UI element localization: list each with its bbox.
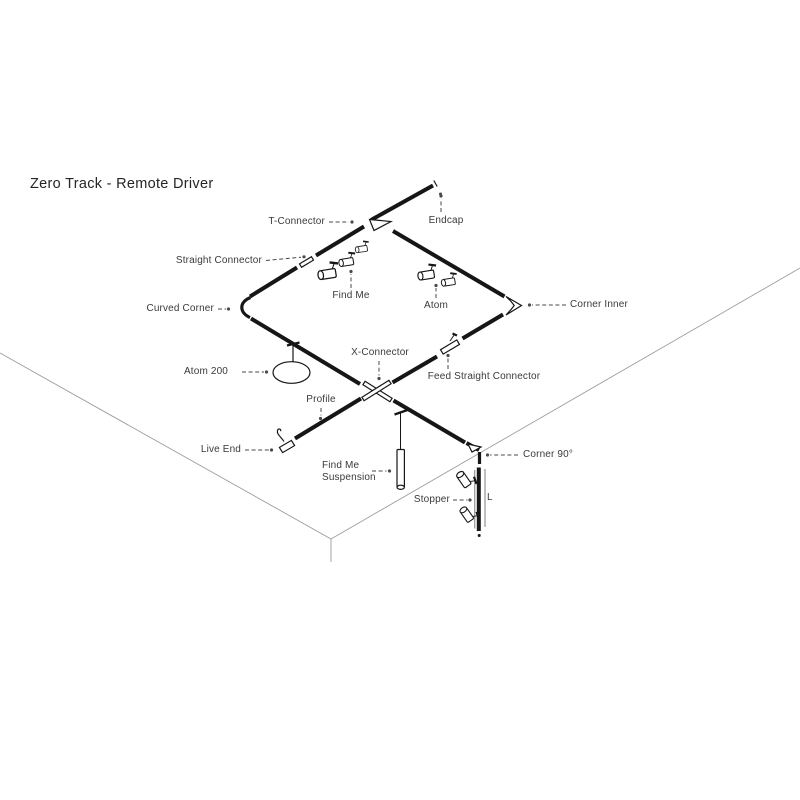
straight-connector-icon <box>300 257 314 268</box>
feed-straight-connector-icon <box>441 334 460 355</box>
label-live-end: Live End <box>201 444 241 456</box>
label-t-connector: T-Connector <box>268 216 325 228</box>
x-connector-icon <box>362 380 392 401</box>
spotlight-icon <box>440 272 458 286</box>
label-atom: Atom <box>424 300 448 312</box>
track-diagram-canvas <box>0 0 800 800</box>
spotlight-icon <box>316 261 340 280</box>
spotlight-icon <box>354 240 370 252</box>
page-title: Zero Track - Remote Driver <box>30 176 213 192</box>
label-feed-straight-connector: Feed Straight Connector <box>428 371 540 383</box>
label-length-marker: L <box>487 492 493 504</box>
suspension-pendant-icon <box>395 410 408 489</box>
label-find-me: Find Me <box>332 290 369 302</box>
label-find-me-suspension-line1: Find Me <box>322 460 376 472</box>
endcap-icon <box>434 181 437 187</box>
label-corner-inner: Corner Inner <box>570 299 628 311</box>
label-stopper: Stopper <box>414 494 450 506</box>
label-corner-90: Corner 90° <box>523 449 573 461</box>
label-x-connector: X-Connector <box>351 347 409 359</box>
live-end-icon <box>277 429 294 453</box>
stopper-dot <box>478 534 481 537</box>
label-find-me-suspension-line2: Suspension <box>322 472 376 484</box>
label-curved-corner: Curved Corner <box>146 303 214 315</box>
spotlight-icon <box>416 263 438 280</box>
wall-track <box>475 468 485 538</box>
curved-corner-icon <box>242 298 251 318</box>
corner-inner-icon <box>506 297 522 316</box>
label-find-me-suspension: Find Me Suspension <box>322 460 376 483</box>
label-atom-200: Atom 200 <box>184 366 228 378</box>
t-connector-icon <box>370 220 392 231</box>
spotlight-icon <box>338 252 357 267</box>
diagram-page: Zero Track - Remote Driver T-Connector E… <box>0 0 800 800</box>
corner-90-icon <box>467 443 482 464</box>
label-straight-connector: Straight Connector <box>176 255 262 267</box>
label-endcap: Endcap <box>429 215 464 227</box>
label-profile: Profile <box>306 394 335 406</box>
